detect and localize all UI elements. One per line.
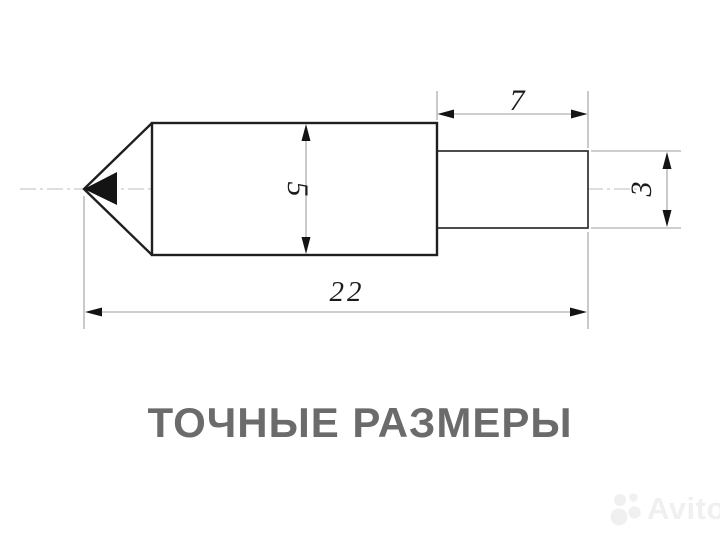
arrow-right-icon	[571, 110, 588, 119]
dim-shaft-length: 7	[437, 84, 588, 148]
part-cone-tip	[84, 172, 117, 205]
drawing-canvas: 5 7 3 22	[0, 0, 720, 540]
arrow-down-icon	[663, 210, 672, 227]
arrow-right-icon	[570, 308, 587, 317]
page-title: ТОЧНЫЕ РАЗМЕРЫ	[0, 399, 720, 447]
dim-shaft-diameter: 3	[591, 151, 681, 228]
arrow-left-icon	[438, 110, 455, 119]
arrow-up-icon	[663, 152, 672, 169]
dim-body-diameter-label: 5	[281, 182, 314, 197]
page: 5 7 3 22 ТОЧНЫЕ	[0, 0, 720, 540]
part-outline	[84, 123, 588, 255]
dim-shaft-diameter-label: 3	[625, 182, 658, 198]
dim-shaft-length-label: 7	[510, 84, 527, 117]
part-shaft	[437, 151, 588, 228]
dim-total-length-label: 22	[330, 276, 365, 308]
arrow-left-icon	[85, 308, 102, 317]
